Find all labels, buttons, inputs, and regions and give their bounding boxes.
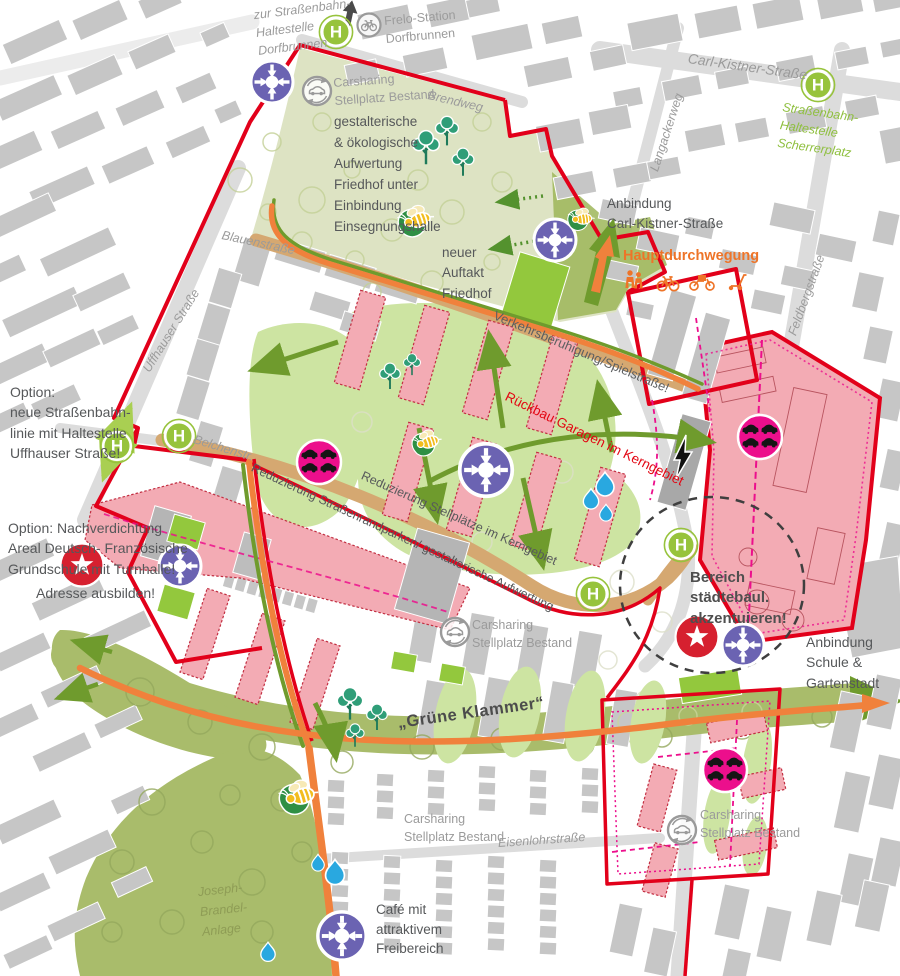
label-bereich: Bereich städtebaul. akzentuieren! [690,568,787,629]
mobility-hub-icon [722,624,764,666]
label-auftakt: neuer Auftakt Friedhof [442,243,492,304]
label-anbindung-schule: Anbindung Schule & Gartenstadt [806,632,879,693]
tram-stop-icon [576,577,609,610]
label-hauptdurchwegung: Hauptdurchwegung [623,246,759,267]
label-scherrerplatz: Straßenbahn- Haltestelle Scherrerplatz [776,98,859,162]
parking-cars-icon [703,748,747,792]
mobility-hub-icon [318,912,366,960]
parking-cars-icon [297,440,341,484]
carsharing-icon [441,618,469,646]
tram-stop-icon [664,528,697,561]
parking-cars-icon [738,415,782,459]
label-cafe: Café mit attraktivem Freibereich [376,900,444,959]
label-frelo: Frelo-Station Dorfbrunnen [383,6,457,48]
carsharing-icon [668,816,696,844]
label-option-tram: Option: neue Straßenbahn- linie mit Halt… [10,382,131,463]
mobility-hub-icon [460,444,513,497]
carsharing-icon [303,77,331,105]
label-joseph-brandel: Joseph- Brandel- Anlage [197,877,250,942]
label-anbindung-ck: Anbindung Carl-Kistner-Straße [607,194,723,233]
label-carsharing-mid: Carsharing Stellplatz Bestand [472,616,572,652]
mobility-hub-icon [251,61,293,103]
label-option-schule: Option: Nachverdichtung Areal Deutsch- F… [8,518,188,579]
label-carsharing-bottom: Carsharing Stellplatz Bestand [404,810,504,846]
urban-plan-map: H [0,0,900,976]
label-carsharing-top: Carsharing Stellplatz Bestand [333,67,435,110]
label-carsharing-br: Carsharing Stellplatz Bestand [700,806,800,842]
label-friedhof: gestalterische & ökologische Aufwertung … [334,112,441,238]
label-adresse: Adresse ausbilden! [36,583,155,603]
